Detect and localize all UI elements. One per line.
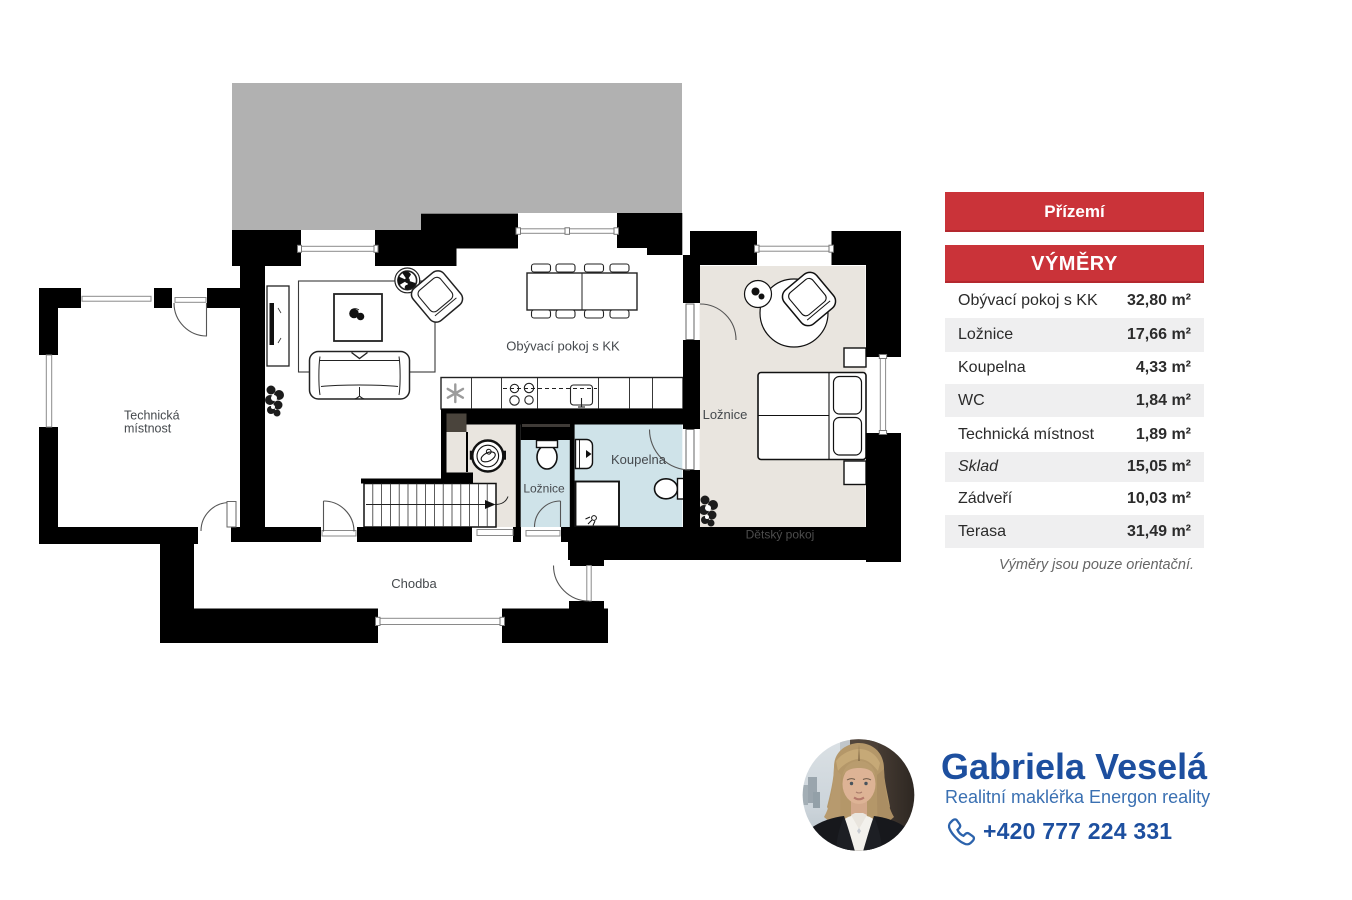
svg-text:Obývací pokoj s KK: Obývací pokoj s KK [506, 339, 620, 354]
svg-text:Koupelna: Koupelna [611, 452, 667, 467]
svg-text:místnost: místnost [124, 422, 172, 436]
svg-text:Ložnice: Ložnice [703, 407, 748, 422]
svg-text:Chodba: Chodba [391, 576, 437, 591]
svg-text:Dětský pokoj: Dětský pokoj [746, 528, 815, 542]
svg-text:Technická: Technická [124, 409, 180, 423]
svg-text:Ložnice: Ložnice [523, 482, 565, 496]
